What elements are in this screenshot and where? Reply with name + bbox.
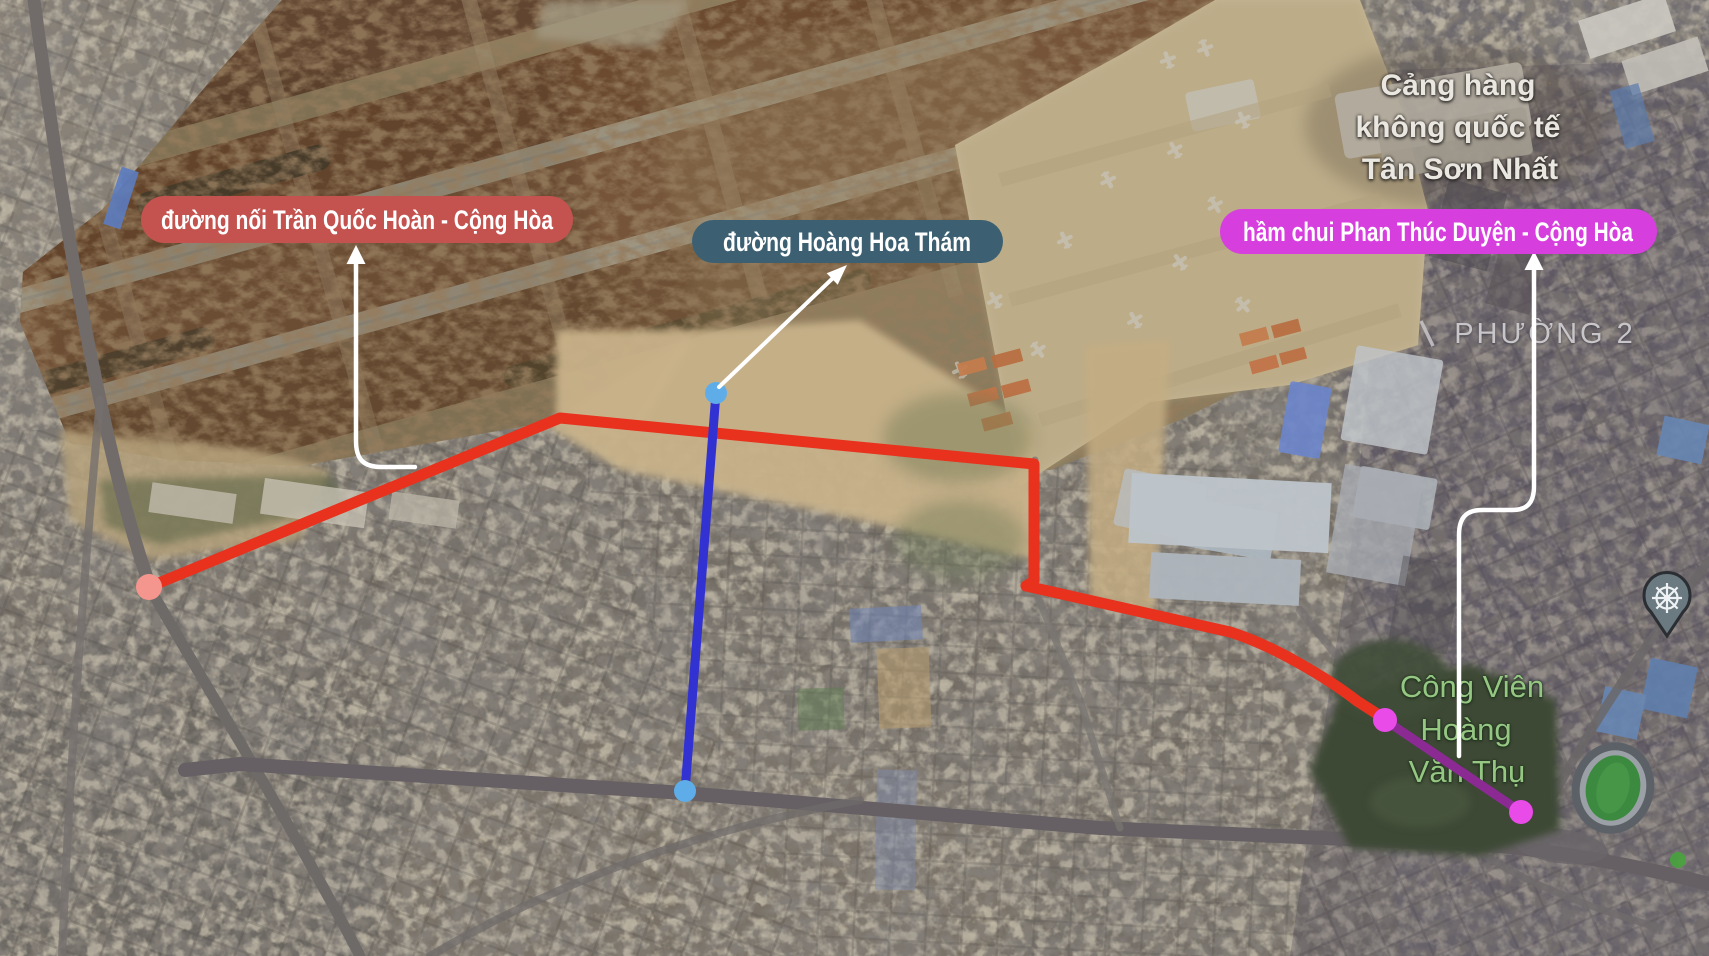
svg-text:không quốc tế: không quốc tế [1356,111,1561,144]
svg-text:hầm chui Phan Thúc Duyện - Cộn: hầm chui Phan Thúc Duyện - Cộng Hòa [1243,217,1634,247]
svg-text:đường Hoàng Hoa Thám: đường Hoàng Hoa Thám [723,227,971,257]
svg-text:Hoàng: Hoàng [1420,712,1511,747]
svg-text:đường nối Trần Quốc Hoàn - Cộn: đường nối Trần Quốc Hoàn - Cộng Hòa [161,205,554,235]
svg-text:Tân Sơn Nhất: Tân Sơn Nhất [1362,153,1558,186]
svg-text:Cảng hàng: Cảng hàng [1381,69,1536,102]
svg-text:PHƯỜNG 2: PHƯỜNG 2 [1454,317,1636,350]
svg-text:Công Viên: Công Viên [1400,669,1544,704]
